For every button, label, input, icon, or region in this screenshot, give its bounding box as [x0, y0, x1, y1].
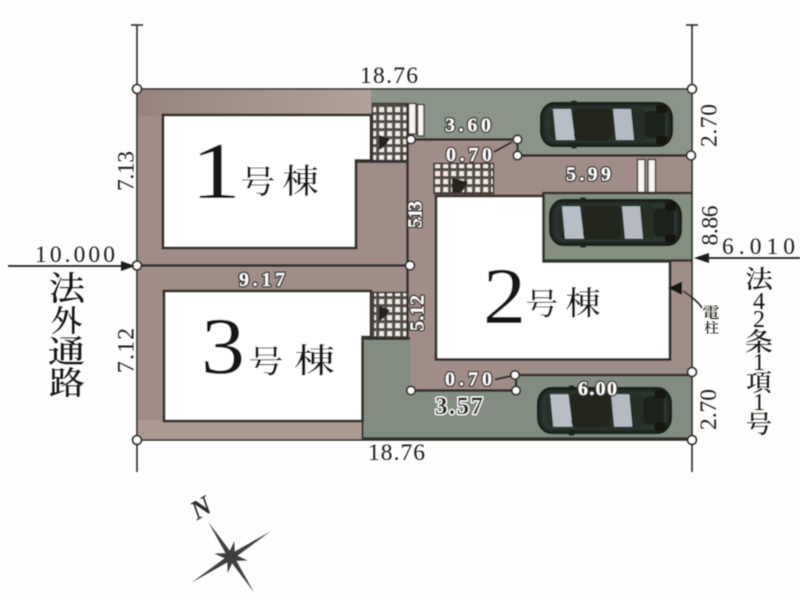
svg-text:7.12: 7.12 [114, 328, 140, 373]
svg-text:0.70: 0.70 [445, 369, 492, 391]
svg-text:18.76: 18.76 [368, 440, 425, 466]
svg-text:6.010: 6.010 [722, 234, 795, 260]
svg-text:2: 2 [483, 253, 526, 341]
svg-text:5.12: 5.12 [407, 295, 429, 331]
svg-text:2.70: 2.70 [696, 389, 722, 430]
svg-text:7.13: 7.13 [114, 151, 140, 191]
svg-text:2.70: 2.70 [697, 104, 723, 147]
svg-text:1: 1 [753, 350, 765, 376]
svg-text:3.57: 3.57 [435, 393, 483, 420]
svg-text:9.17: 9.17 [239, 269, 285, 291]
svg-text:6.00: 6.00 [578, 378, 617, 400]
svg-text:18.76: 18.76 [360, 63, 418, 89]
svg-text:8.86: 8.86 [698, 205, 724, 245]
svg-text:0.70: 0.70 [446, 144, 492, 166]
svg-text:1: 1 [191, 128, 241, 216]
svg-text:2: 2 [753, 307, 765, 333]
svg-text:1: 1 [753, 390, 765, 416]
svg-text:5.99: 5.99 [566, 164, 611, 186]
svg-text:3: 3 [201, 303, 245, 391]
svg-text:5.13: 5.13 [405, 201, 427, 228]
svg-text:3.60: 3.60 [445, 115, 491, 137]
